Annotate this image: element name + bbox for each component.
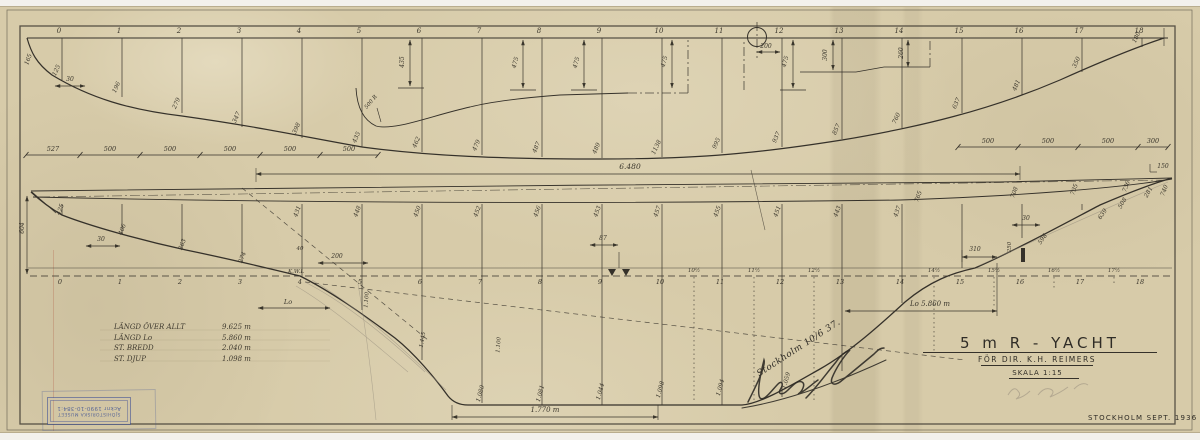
drawing-annotation: 500 xyxy=(1102,137,1114,145)
drawing-annotation: 637 xyxy=(951,97,962,111)
drawing-annotation: 196 xyxy=(111,81,122,95)
drawing-annotation: 5 xyxy=(357,27,362,35)
drawing-annotation: 1.080 xyxy=(475,384,486,403)
drawing-annotation: 260 xyxy=(898,47,905,60)
drawing-annotation: 11 xyxy=(715,27,724,35)
dim-label: LÄNGD Lo xyxy=(114,334,152,342)
mast-line xyxy=(751,170,765,230)
drawing-annotation: 500 xyxy=(1042,137,1054,145)
drawing-annotation: 87 xyxy=(599,235,607,242)
drawing-annotation: 150 xyxy=(1157,163,1169,170)
drawing-annotation: 937 xyxy=(771,131,782,145)
client-underline xyxy=(981,365,1093,366)
dim-label: LÄNGD ÖVER ALLT xyxy=(114,323,185,331)
drawing-annotation: 437 xyxy=(892,205,903,219)
table-row: LÄNGD ÖVER ALLT 9.625 m xyxy=(114,323,314,334)
drawing-annotation: 1 xyxy=(117,27,121,35)
drawing-annotation: 1.770 m xyxy=(531,406,560,414)
drawing-annotation: 995 xyxy=(711,137,722,151)
dim-value: 1.098 m xyxy=(222,355,251,363)
drawing-annotation: 527 xyxy=(47,145,60,153)
drawing-annotation: 479 xyxy=(471,139,483,153)
drawing-annotation: 0 xyxy=(58,278,62,286)
drawing-annotation: 30 xyxy=(97,236,105,243)
drawing-annotation: 453 xyxy=(592,205,603,219)
drawing-annotation: 0 xyxy=(57,27,62,35)
drawing-annotation: 12 xyxy=(775,27,784,35)
drawing-annotation: 300 xyxy=(1147,137,1159,145)
drawing-annotation: 765 xyxy=(913,190,924,203)
drawing-title: 5 m R - YACHT xyxy=(920,334,1160,352)
drawing-annotation: 857 xyxy=(831,123,842,137)
drawing-annotation: 6.480 xyxy=(619,162,641,171)
sheet-frame xyxy=(7,10,1192,430)
drawing-annotation: 398 xyxy=(291,122,302,136)
drawing-annotation: 300 xyxy=(822,49,829,61)
drawing-annotation: 500 xyxy=(104,145,116,153)
drawing-annotation: Lo 5.860 m xyxy=(909,300,950,308)
drawing-annotation: 8 xyxy=(537,27,542,35)
drawing-annotation: 40 xyxy=(296,246,304,252)
drawing-annotation: 508 xyxy=(1117,196,1129,210)
drawing-annotation: 10½ xyxy=(688,267,700,274)
scale-line: SKALA 1:15 xyxy=(980,369,1095,377)
drawing-annotation: 1.100 xyxy=(495,336,502,353)
drawing-annotation: 310 xyxy=(969,246,981,253)
drawing-annotation: 489 xyxy=(591,142,603,156)
dim-value: 2.040 m xyxy=(222,344,251,352)
drawing-annotation: 11 xyxy=(716,278,724,286)
drawing-annotation: 452 xyxy=(472,205,483,219)
sheer-line-upper xyxy=(31,178,1172,191)
drawing-annotation: 8 xyxy=(538,278,542,286)
cockpit-well-curve xyxy=(356,88,628,127)
drawing-annotation: 435 xyxy=(399,56,406,69)
drawing-annotation: 279 xyxy=(171,97,183,111)
table-row: ST. BREDD 2.040 m xyxy=(114,344,314,355)
drawing-annotation: 1.098 xyxy=(655,380,666,399)
drawing-annotation: 1138 xyxy=(650,139,663,156)
drawing-annotation: 435 xyxy=(351,131,363,145)
drawing-annotation: 30 xyxy=(1022,215,1030,222)
drawing-annotation: 125 xyxy=(51,64,62,78)
drawing-annotation: 13 xyxy=(835,27,844,35)
drawing-annotation: 598 xyxy=(1037,232,1049,246)
drawing-annotation: 350 xyxy=(1071,56,1082,70)
drawing-annotation: 200 xyxy=(330,253,343,260)
drawing-annotation: 347 xyxy=(231,111,242,125)
drawing-annotation: 475 xyxy=(510,56,520,70)
drawing-annotation: 431 xyxy=(292,205,303,219)
drawing-annotation: 12 xyxy=(776,278,784,286)
deck-detail-bars xyxy=(377,67,930,122)
dim-value: 9.625 m xyxy=(222,323,251,331)
drawing-annotation: 13 xyxy=(836,278,844,286)
drawing-annotation: 4 xyxy=(297,278,302,286)
top-view xyxy=(27,22,1168,182)
table-row: LÄNGD Lo 5.860 m xyxy=(114,334,314,345)
drawing-annotation: 1.081 xyxy=(535,384,546,402)
principal-dimensions-table: LÄNGD ÖVER ALLT 9.625 m LÄNGD Lo 5.860 m… xyxy=(114,323,314,365)
archive-stamp: SJÖHISTORISKA MUSEET Acknr 1990-10-384:1 xyxy=(47,397,131,425)
drawing-annotation: 9 xyxy=(597,27,602,35)
drawing-annotation: Lo xyxy=(283,298,292,306)
centerline-dashdot xyxy=(40,180,1168,197)
drawing-annotation: 165 xyxy=(23,53,34,66)
drawing-annotation: 250 xyxy=(1007,241,1013,253)
drawing-annotation: 500 xyxy=(224,145,236,153)
drawing-annotation: K.W.L xyxy=(287,269,304,275)
drawing-annotation: 481 xyxy=(1011,79,1023,93)
drawing-annotation: 10 xyxy=(656,278,664,286)
drawing-annotation: 451 xyxy=(772,205,783,219)
drawing-annotation: 16½ xyxy=(1048,267,1060,274)
drawing-annotation: 14 xyxy=(896,278,904,286)
drawing-annotation: 457 xyxy=(652,205,663,219)
drawing-annotation: 200 xyxy=(759,43,772,50)
drawing-annotation: 15½ xyxy=(988,267,1000,274)
drawing-annotation: 3 xyxy=(237,27,242,35)
dim-value: 5.860 m xyxy=(222,334,251,342)
drawing-annotation: 425 xyxy=(55,203,66,217)
drawing-annotation: 4 xyxy=(296,27,301,35)
drawing-annotation: 1.100 xyxy=(363,291,370,308)
pencil-signature xyxy=(1008,384,1088,399)
drawing-annotation: 736 xyxy=(1121,180,1132,193)
drawing-annotation: 500 xyxy=(284,145,296,153)
drawing-annotation: 740 xyxy=(1159,184,1170,197)
drawing-annotation: 443 xyxy=(832,205,843,219)
drawing-annotation: 406 xyxy=(117,223,128,237)
title-underline xyxy=(923,352,1157,353)
drawing-annotation: 16 xyxy=(1015,27,1024,35)
drawing-annotation: 7 xyxy=(477,27,482,35)
table-row: ST. DJUP 1.098 m xyxy=(114,355,314,366)
drawing-annotation: 708 xyxy=(1009,186,1020,199)
drawing-annotation: 2 xyxy=(176,27,182,35)
drawing-annotation: 1.094 xyxy=(715,378,726,397)
drawing-annotation: 500 R xyxy=(364,94,379,110)
diagonal-dashed-lines xyxy=(242,188,965,360)
drawing-annotation: 15 xyxy=(955,27,964,35)
drawing-annotation: 15 xyxy=(956,278,964,286)
drawing-annotation: 16 xyxy=(1016,278,1024,286)
dim-label: ST. BREDD xyxy=(114,344,154,352)
drawing-annotation: 12½ xyxy=(808,267,820,274)
drawing-annotation: 475 xyxy=(659,55,669,69)
dim-label: ST. DJUP xyxy=(114,355,146,363)
drawing-annotation: 17 xyxy=(1075,27,1084,35)
drawing-annotation: 760 xyxy=(891,112,902,126)
drawing-annotation: 11½ xyxy=(748,267,760,274)
drawing-annotation: 500 xyxy=(343,145,355,153)
drawing-annotation: 475 xyxy=(571,56,581,70)
drawing-annotation: 17½ xyxy=(1108,267,1120,274)
drawing-annotation: 2 xyxy=(177,278,182,286)
drawing-annotation: 14 xyxy=(895,27,904,35)
drawing-annotation: 5 xyxy=(358,278,362,286)
drawing-annotation: 500 xyxy=(982,137,994,145)
drawing-annotation: 448 xyxy=(352,205,363,219)
drawing-annotation: 9 xyxy=(598,278,602,286)
drawing-annotation: 500 xyxy=(164,145,176,153)
drawing-annotation: 462 xyxy=(411,136,423,150)
drawing-annotation: 3 xyxy=(238,278,242,286)
drawing-annotation: 1 xyxy=(118,278,122,286)
drawing-annotation: 30 xyxy=(66,76,74,83)
drawing-annotation: 604 xyxy=(19,222,26,234)
drawing-annotation: 735 xyxy=(1069,183,1080,196)
client-line: FÖR DIR. K.H. REIMERS xyxy=(957,355,1117,364)
drawing-annotation: 18 xyxy=(1136,278,1144,286)
drawing-annotation: 10 xyxy=(655,27,664,35)
drawing-annotation: 639 xyxy=(1097,207,1109,221)
drawing-annotation: 450 xyxy=(412,205,423,219)
drawing-annotation: 14½ xyxy=(928,267,940,274)
stamp-museum-name: SJÖHISTORISKA MUSEET xyxy=(48,412,130,417)
drawing-annotation: 6 xyxy=(417,27,422,35)
drawing-annotation: 487 xyxy=(531,141,543,155)
drawing-annotation: 17 xyxy=(1076,278,1085,286)
drawing-annotation: 455 xyxy=(712,205,723,219)
drawing-annotation: 363 xyxy=(177,238,188,251)
drawing-annotation: 456 xyxy=(532,205,543,219)
drawing-annotation: 6 xyxy=(418,278,422,286)
place-date: STOCKHOLM SEPT. 1936 xyxy=(1088,414,1197,422)
profile-view xyxy=(28,164,1172,420)
pencil-construction-curves xyxy=(296,182,1168,420)
drawing-annotation: 1.044 xyxy=(595,382,606,401)
scale-underline xyxy=(1009,378,1079,379)
stamp-accession-number: Acknr 1990-10-384:1 xyxy=(48,406,130,412)
